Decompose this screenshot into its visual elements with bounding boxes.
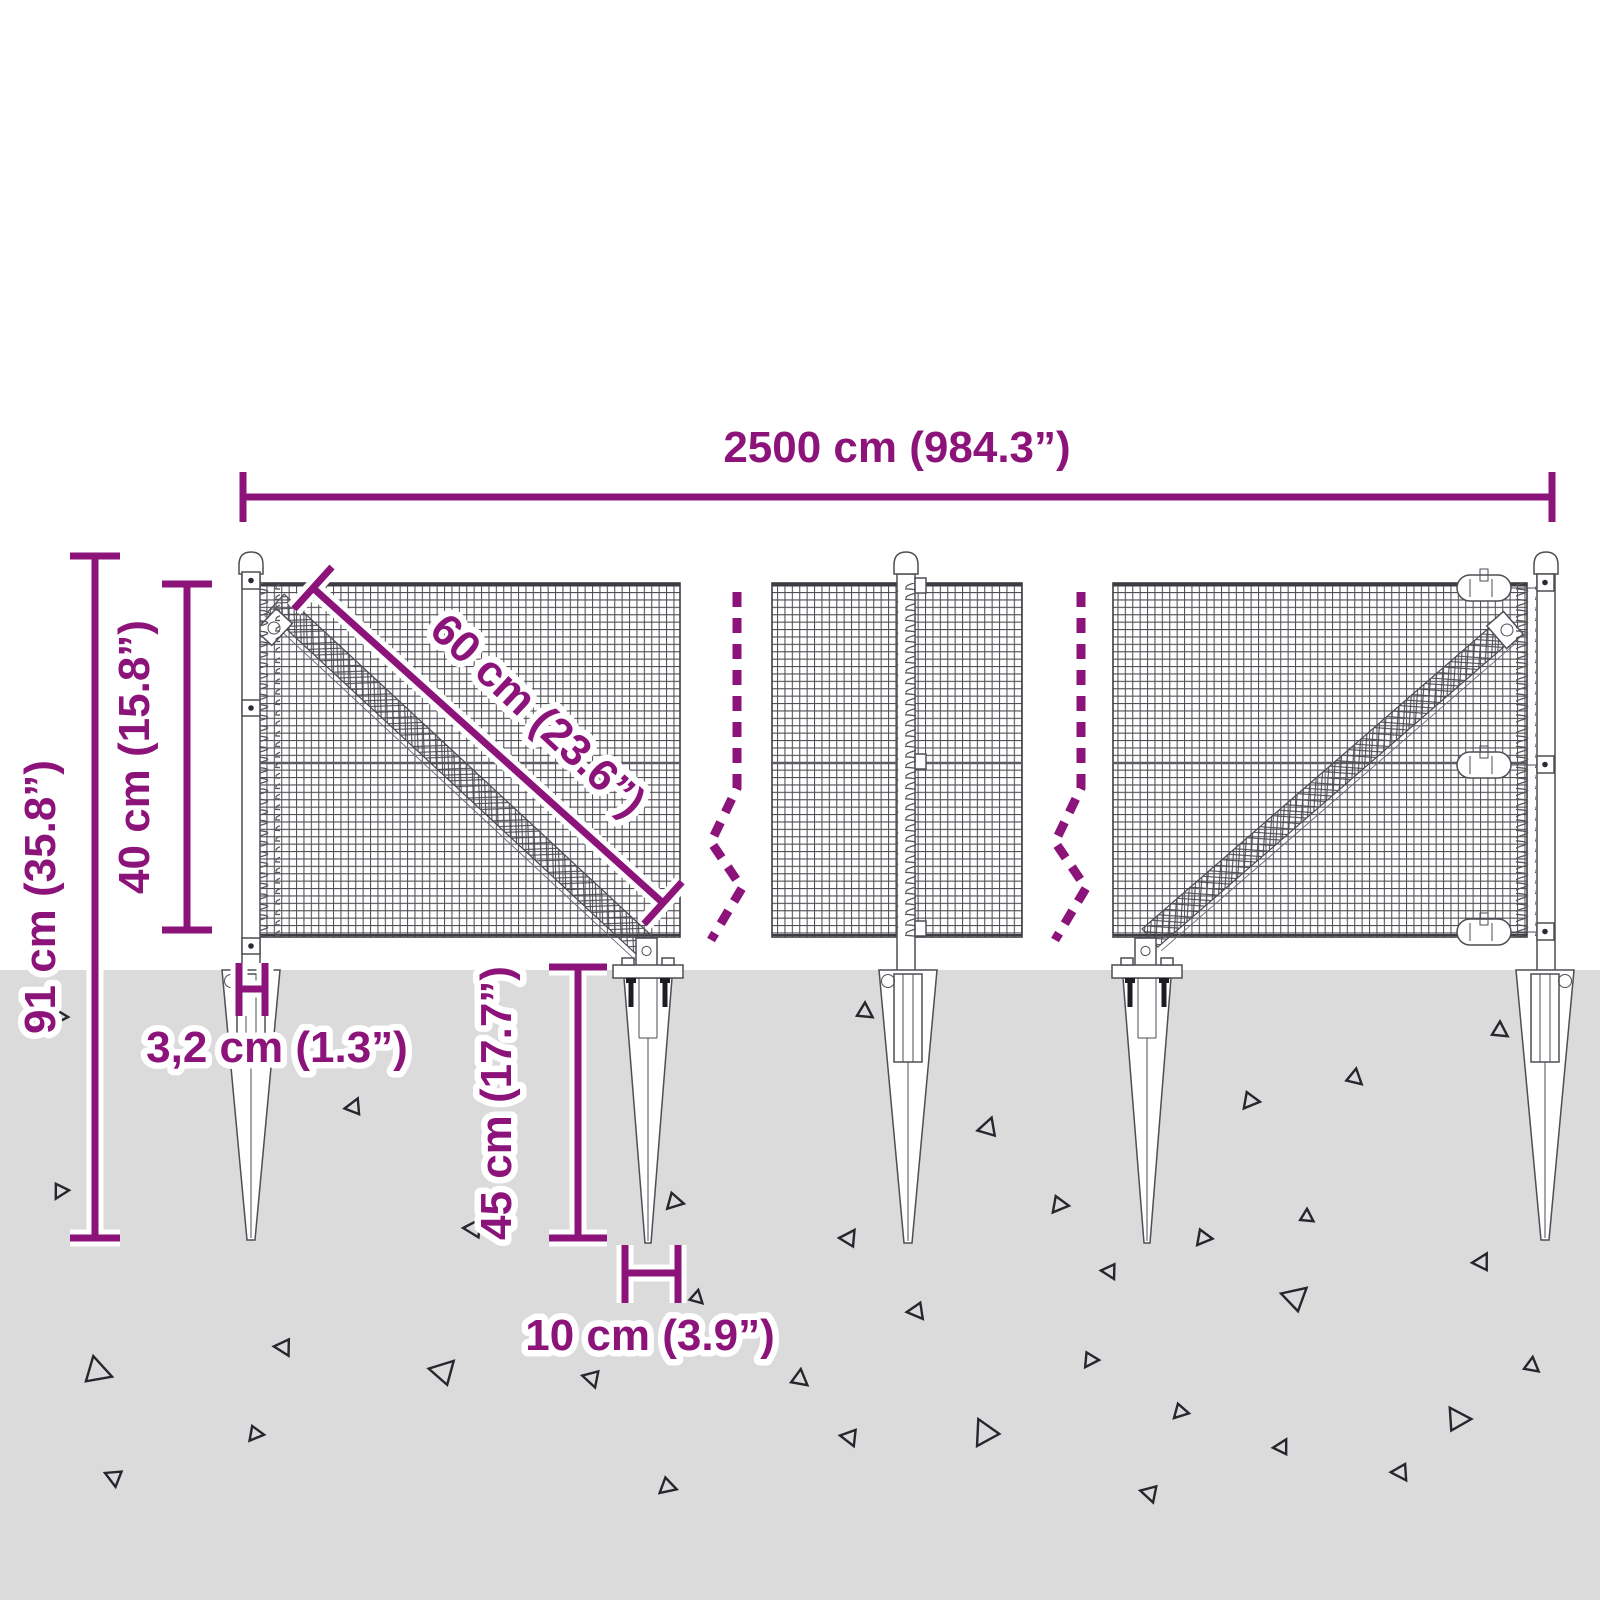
dim-label-post-width: 3,2 cm (1.3”): [146, 1023, 408, 1072]
binding-coil-left: [260, 583, 280, 937]
binding-coil-right: [1516, 583, 1536, 937]
diagram-canvas: 2500 cm (984.3”) 91 cm (35.8”) 40 cm (15…: [0, 0, 1600, 1600]
dimension-mesh-height: [162, 584, 212, 930]
dim-label-spike-depth: 45 cm (17.7”): [472, 966, 521, 1240]
binding-coil-middle: [896, 583, 916, 937]
post-right: [1516, 552, 1558, 972]
post-left: [239, 552, 280, 972]
break-mark-right: [1055, 592, 1086, 940]
fence-dimension-diagram: 2500 cm (984.3”) 91 cm (35.8”) 40 cm (15…: [0, 0, 1600, 1600]
dim-label-total-width: 2500 cm (984.3”): [723, 423, 1070, 472]
dim-label-overall-height: 91 cm (35.8”): [16, 760, 65, 1034]
dim-label-spike-width: 10 cm (3.9”): [525, 1311, 774, 1360]
break-mark-left: [711, 592, 742, 940]
dimension-total-width: [243, 472, 1552, 522]
dim-label-mesh-height: 40 cm (15.8”): [110, 620, 159, 894]
